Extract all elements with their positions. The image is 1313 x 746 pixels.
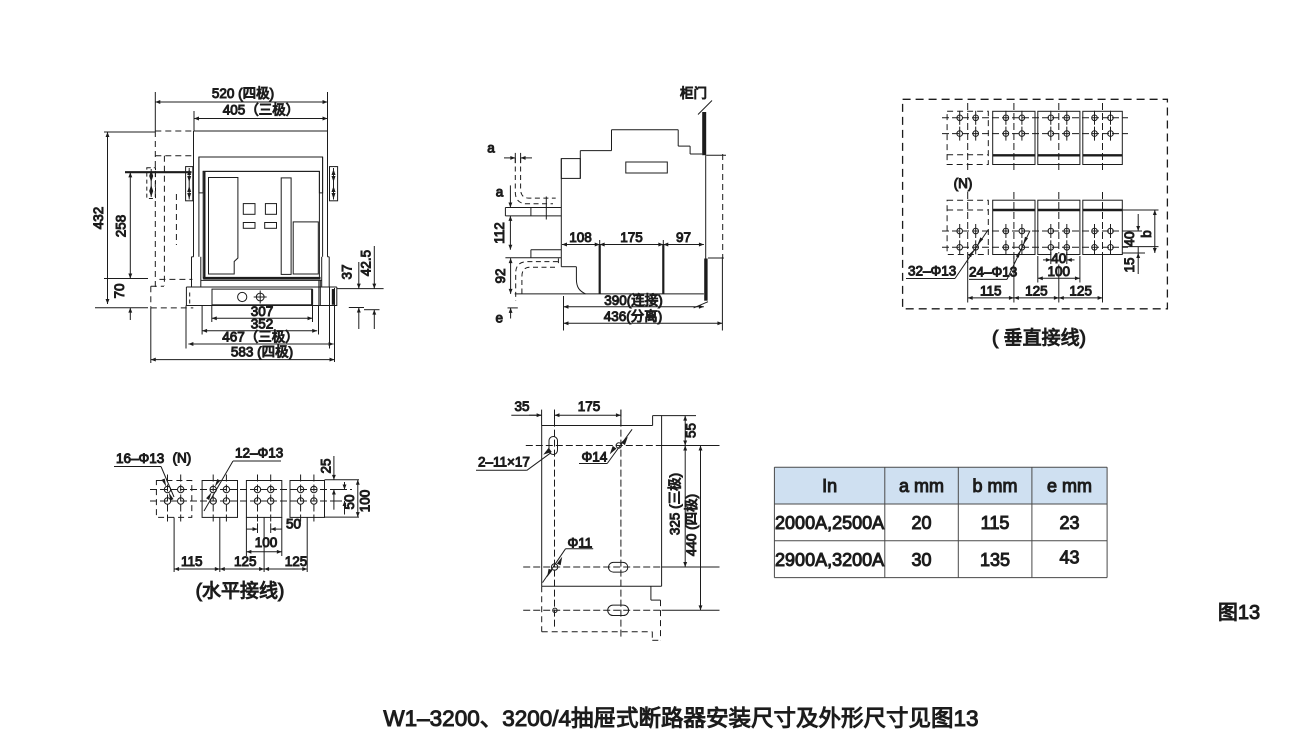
svg-text:115: 115: [981, 513, 1010, 533]
svg-text:70: 70: [112, 283, 127, 298]
svg-text:135: 135: [980, 550, 1010, 570]
svg-text:125: 125: [1025, 284, 1048, 299]
svg-text:436(分离): 436(分离): [604, 308, 663, 324]
svg-text:a mm: a mm: [899, 476, 944, 496]
svg-text:467（三极）: 467（三极）: [222, 330, 299, 345]
svg-text:2–11×17: 2–11×17: [478, 455, 530, 470]
svg-text:100: 100: [1048, 264, 1071, 279]
svg-text:2900A,3200A: 2900A,3200A: [775, 550, 884, 570]
svg-text:b: b: [1139, 230, 1154, 238]
svg-text:125: 125: [285, 554, 308, 569]
svg-text:108: 108: [569, 230, 592, 245]
svg-text:(N): (N): [173, 451, 192, 466]
svg-text:125: 125: [1069, 284, 1092, 299]
svg-text:115: 115: [181, 554, 203, 569]
svg-text:W1–3200、3200/4抽屉式断路器安装尺寸及外形尺寸见: W1–3200、3200/4抽屉式断路器安装尺寸及外形尺寸见图13: [383, 706, 978, 731]
svg-text:2000A,2500A: 2000A,2500A: [775, 513, 884, 533]
svg-text:20: 20: [911, 513, 931, 533]
svg-text:柜门: 柜门: [680, 86, 707, 101]
svg-text:92: 92: [493, 268, 508, 283]
svg-text:520 (四极): 520 (四极): [212, 86, 274, 101]
svg-text:42.5: 42.5: [359, 250, 374, 276]
svg-text:e mm: e mm: [1047, 476, 1092, 496]
svg-text:390(连接): 390(连接): [604, 292, 663, 308]
svg-text:b mm: b mm: [973, 476, 1018, 496]
svg-text:In: In: [822, 476, 837, 496]
svg-text:125: 125: [234, 554, 257, 569]
svg-text:12–Φ13: 12–Φ13: [235, 446, 283, 461]
svg-text:35: 35: [514, 399, 529, 414]
svg-text:112: 112: [492, 222, 507, 244]
svg-text:40: 40: [1122, 231, 1137, 246]
svg-text:432: 432: [91, 207, 106, 230]
svg-text:100: 100: [255, 535, 278, 550]
svg-text:100: 100: [358, 490, 373, 513]
svg-text:50: 50: [286, 517, 301, 532]
svg-text:Φ11: Φ11: [568, 536, 593, 551]
svg-text:( 垂直接线): ( 垂直接线): [992, 327, 1086, 349]
svg-text:175: 175: [578, 399, 601, 414]
svg-text:16–Φ13: 16–Φ13: [116, 451, 164, 466]
svg-text:e: e: [496, 311, 504, 326]
svg-text:440 (四极): 440 (四极): [684, 494, 699, 556]
svg-text:583 (四极): 583 (四极): [231, 345, 293, 360]
svg-text:25: 25: [319, 458, 334, 473]
svg-text:55: 55: [684, 423, 699, 438]
svg-text:图13: 图13: [1218, 602, 1260, 624]
svg-text:15: 15: [1122, 257, 1137, 272]
svg-text:(N): (N): [954, 176, 973, 191]
svg-text:50: 50: [342, 494, 357, 509]
svg-text:Φ14: Φ14: [582, 450, 608, 465]
svg-text:258: 258: [114, 215, 129, 238]
svg-text:405（三极）: 405（三极）: [223, 103, 300, 118]
svg-text:325 (三极): 325 (三极): [668, 473, 683, 535]
svg-text:32–Φ13: 32–Φ13: [908, 264, 956, 279]
svg-text:a: a: [496, 185, 504, 200]
svg-text:a: a: [487, 141, 495, 156]
svg-text:175: 175: [620, 230, 643, 245]
svg-text:(水平接线): (水平接线): [196, 580, 285, 602]
svg-text:30: 30: [911, 550, 931, 570]
svg-text:23: 23: [1059, 513, 1079, 533]
svg-text:43: 43: [1059, 548, 1079, 568]
svg-text:97: 97: [676, 230, 691, 245]
svg-text:115: 115: [980, 284, 1002, 299]
svg-text:37: 37: [340, 264, 355, 279]
